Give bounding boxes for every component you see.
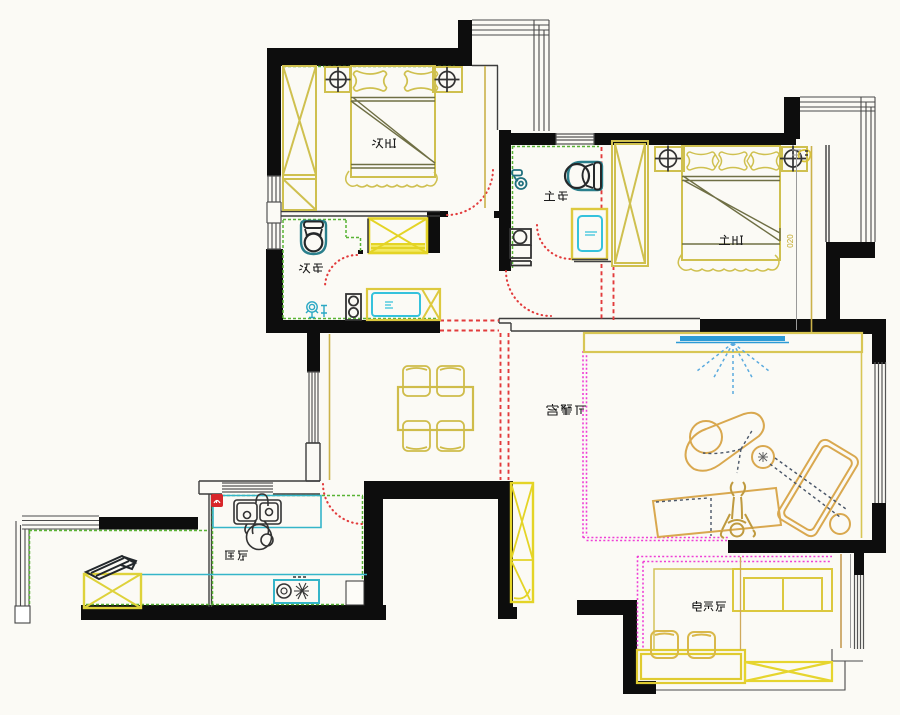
svg-text:020: 020 [786,234,795,248]
